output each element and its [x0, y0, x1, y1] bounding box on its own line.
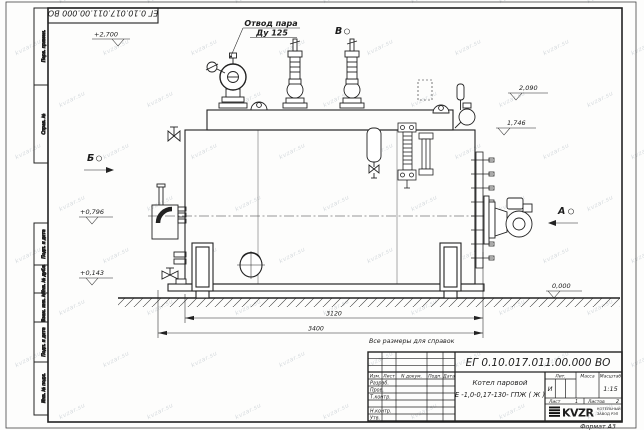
manhole	[237, 251, 265, 279]
dimension-text: 3120	[326, 311, 342, 318]
elevation-mark-1746: 1,746	[496, 119, 536, 135]
tb-sheet-label: Лист	[548, 399, 561, 405]
view-marker-b: Б	[84, 153, 114, 173]
ground-hatch	[118, 298, 620, 307]
steam-outlet-text-1: Отвод пара	[244, 19, 297, 28]
tb-doc-number: ЕГ 0.10.017.011.00.000 ВО	[466, 357, 611, 369]
elevation-mark-0143: +0,143	[79, 269, 113, 285]
elevation-mark-2700: +2,700	[92, 31, 130, 47]
tb-col-podp: Подп.	[428, 373, 442, 379]
tb-row-utv: Утв.	[370, 415, 380, 421]
kvzr-logo-sub2: ЗАВОД РЭП	[597, 412, 619, 416]
elevation-text: 0,000	[552, 282, 571, 290]
water-level-gauge-2	[419, 133, 433, 175]
stamp-vzam-inv: Взам. инв. №	[41, 292, 47, 322]
safety-valve-2	[340, 39, 364, 108]
elevation-text: 1,746	[507, 119, 526, 127]
lifting-lug-left	[251, 102, 267, 110]
elevation-text: +0,796	[80, 208, 104, 216]
elevation-mark-2090: 2,090	[508, 84, 548, 100]
level-column	[367, 128, 381, 178]
drain-valve	[162, 268, 186, 284]
kvzr-logo-text: KVZR	[562, 407, 595, 420]
elevation-text: 2,090	[519, 84, 538, 92]
steam-outlet-text-2: Ду 125	[255, 29, 288, 38]
dashed-opening	[418, 80, 432, 100]
annotations: Отвод пара Ду 125 +2,700 +0,796 +0,143	[79, 19, 582, 345]
tb-scale-label: Масштаб	[600, 373, 622, 379]
elevation-mark-0000: 0,000	[546, 282, 582, 298]
rear-support	[440, 243, 461, 298]
top-doc-number: ЕГ 0.10.017.011.00.000 ВО	[48, 9, 158, 18]
kvzr-logo-sub1: КОТЕЛЬНЫЙ	[597, 406, 621, 411]
base-frame	[168, 284, 484, 291]
tb-product-name-1: Котел паровой	[473, 379, 528, 387]
tb-row-tkontr: Т.контр.	[370, 394, 391, 400]
dimension-between-supports: 3120	[185, 252, 483, 323]
safety-valve-1	[283, 39, 307, 108]
drawing-sheet: kvzar.sukvzar.sukvzar.sukvzar.sukvzar.su…	[0, 0, 644, 430]
steam-outlet-valve	[206, 53, 247, 108]
boiler-side-view	[118, 39, 620, 307]
tb-col-izm: Изм.	[370, 373, 381, 379]
lifting-lug-right	[433, 105, 449, 113]
front-top-valve	[168, 127, 180, 141]
reference-note: Все размеры для справок	[369, 338, 455, 345]
stamp-podp-data-1: Подп. и дата	[41, 229, 47, 259]
tb-sheets-label: Листов	[587, 399, 605, 405]
gauge-siphon	[455, 103, 475, 128]
kvzr-logo: KVZR КОТЕЛЬНЫЙ ЗАВОД РЭП	[549, 406, 621, 420]
valve-handwheel	[206, 62, 225, 73]
tb-row-razrab: Разраб.	[370, 380, 389, 386]
view-marker-v: В	[335, 26, 350, 37]
elevation-mark-0796: +0,796	[79, 208, 113, 224]
left-stamp-boxes: Перв. примен. Справ. № Подп. и дата Инв.…	[34, 8, 48, 415]
view-marker-a: А	[548, 206, 578, 226]
boiler-body	[168, 130, 484, 291]
feed-piping	[152, 184, 186, 284]
stamp-perv-primen: Перв. примен.	[41, 30, 47, 62]
view-letter: А	[557, 206, 565, 217]
tb-lit-value: И	[548, 385, 553, 393]
kvzr-logo-icon	[549, 407, 560, 417]
tb-lit-label: Лит.	[554, 373, 565, 379]
tb-product-name-2: Е -1,0-0,17-130- ГПЖ ( Ж )	[455, 391, 545, 399]
tb-row-prov: Пров.	[370, 387, 384, 393]
stamp-inv-dubl: Инв. № дубл.	[41, 264, 47, 293]
tb-sheets-value: 2	[616, 399, 619, 405]
view-letter: В	[335, 26, 342, 37]
tb-col-data: Дата	[442, 373, 455, 379]
water-level-gauge-1	[398, 123, 416, 188]
tb-sheet-value: 1	[575, 399, 578, 405]
elevation-text: +0,143	[80, 269, 104, 277]
tb-col-ndoc: N докум.	[401, 373, 422, 379]
elevation-text: +2,700	[94, 31, 118, 39]
tb-col-list: Лист	[382, 373, 395, 379]
burner	[484, 196, 532, 244]
stamp-sprav-no: Справ. №	[41, 113, 47, 134]
format-note: Формат А3	[580, 423, 616, 430]
drawing-canvas: Перв. примен. Справ. № Подп. и дата Инв.…	[0, 0, 644, 430]
tb-row-nkontr: Н.контр.	[370, 408, 391, 414]
stamp-podp-data-2: Подп. и дата	[41, 327, 47, 357]
title-block: ЕГ 0.10.017.011.00.000 ВО Котел паровой …	[368, 352, 622, 430]
tb-mass-label: Масса	[580, 373, 595, 379]
dimension-text: 3400	[308, 326, 324, 333]
view-letter: Б	[87, 153, 94, 164]
tb-scale-value: 1:15	[603, 385, 618, 393]
top-doc-box: ЕГ 0.10.017.011.00.000 ВО	[48, 8, 158, 23]
front-support	[192, 243, 213, 298]
stamp-inv-podl: Инв. № подл.	[41, 373, 47, 403]
